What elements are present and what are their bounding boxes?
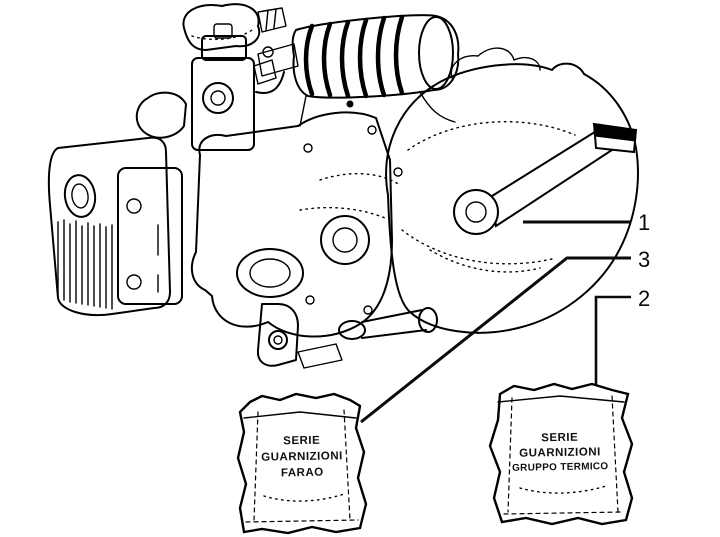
- support-arm: [492, 130, 612, 226]
- callout-2-label: 2: [638, 286, 650, 311]
- engine-illustration: [49, 4, 638, 368]
- parts-diagram: 1 3 2 SERIE GUARNIZIONI FARAO SERIE GUAR…: [0, 0, 720, 537]
- flywheel-cover: [237, 249, 303, 297]
- bag-left-text-line1: SERIE: [283, 435, 320, 448]
- gasket-bag-left: SERIE GUARNIZIONI FARAO: [238, 394, 366, 533]
- cooling-fins: [58, 220, 112, 309]
- air-filter-box: [183, 4, 286, 50]
- bag-right-text-line3: GRUPPO TERMICO: [512, 461, 609, 474]
- float-bowl: [203, 83, 233, 113]
- bag-right-text-line1: SERIE: [541, 432, 578, 445]
- intake-bellows-hose: [258, 15, 458, 126]
- bag-right-text-line2: GUARNIZIONI: [519, 446, 601, 459]
- bottom-brackets: [258, 304, 437, 368]
- clutch-inspection-cover: [321, 216, 369, 264]
- callout-3-label: 3: [638, 247, 650, 272]
- bag-left-text-line3: FARAO: [281, 467, 324, 480]
- callout-1-label: 1: [638, 210, 650, 235]
- crankcase: [192, 101, 402, 337]
- parts-diagram-page: 1 3 2 SERIE GUARNIZIONI FARAO SERIE GUAR…: [0, 0, 720, 537]
- cylinder-head: [49, 138, 182, 315]
- callout-2-leader-line: [596, 297, 631, 386]
- bag-left-text-line2: GUARNIZIONI: [261, 450, 343, 463]
- gasket-bag-right: SERIE GUARNIZIONI GRUPPO TERMICO: [490, 384, 632, 524]
- intake-manifold-boot: [137, 93, 186, 138]
- exhaust-port-stub: [339, 321, 365, 339]
